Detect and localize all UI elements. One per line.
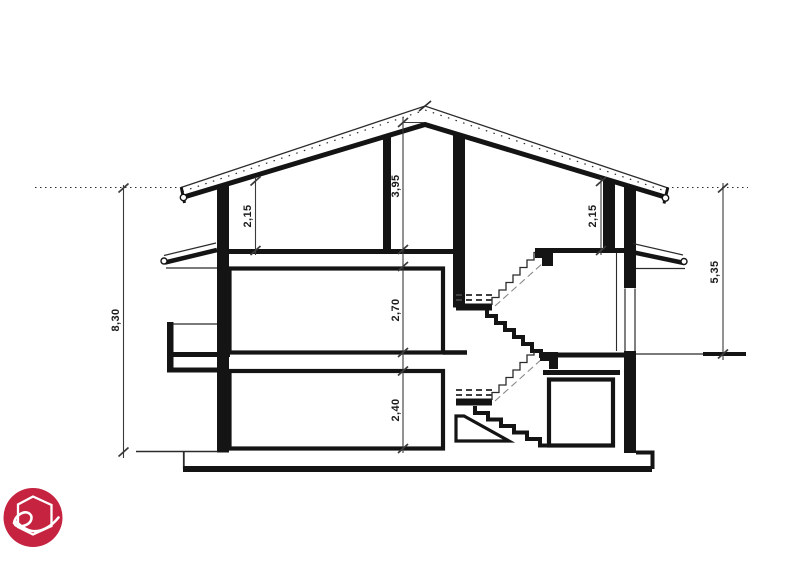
company-logo	[4, 488, 63, 547]
gable-roof	[180, 101, 668, 204]
drawing-canvas: 8,30 5,35 3,95 2,70 2,40 2,15 2,15	[0, 0, 800, 565]
dimension-attic-left-height: 2,15	[242, 204, 254, 227]
exterior-wall-left	[217, 183, 229, 453]
gutter-right	[662, 195, 668, 201]
first-floor-room	[230, 269, 444, 353]
canopy-left-gutter	[161, 258, 167, 264]
canopy-left-slab	[165, 250, 217, 263]
background-flight-lower	[492, 352, 534, 400]
stairwell-wall	[453, 135, 465, 308]
dimension-first-floor-height: 2,70	[390, 298, 402, 321]
cut-flight-upper	[487, 309, 554, 356]
stair-stringer-hidden	[495, 263, 543, 306]
background-flight-upper	[492, 253, 541, 306]
balcony-parapet	[167, 322, 174, 372]
exterior-wall-right-upper	[624, 187, 636, 288]
dimension-ridge-height: 3,95	[390, 174, 402, 197]
attic-wall-right	[603, 181, 615, 251]
ground-floor-room	[230, 371, 444, 449]
canopy-right-gutter	[681, 259, 687, 265]
building-section-drawing: 8,30 5,35 3,95 2,70 2,40 2,15 2,15	[0, 0, 800, 565]
stairs-lower	[456, 352, 558, 446]
dimension-total-height-left: 8,30	[110, 308, 122, 331]
roof-structure-line	[184, 125, 665, 198]
entry-slab-edge-steps	[540, 352, 558, 369]
gutter-left	[180, 194, 186, 200]
stairs-upper	[456, 248, 554, 356]
ridge-datum-tick	[419, 101, 431, 111]
walls	[217, 135, 636, 454]
dimension-ground-floor-height: 2,40	[390, 398, 402, 421]
dimension-attic-right-height: 2,15	[587, 204, 599, 227]
dimension-height-right: 5,35	[709, 260, 721, 283]
exterior-wall-right-lower	[624, 351, 636, 453]
stair-stringer-hidden	[495, 358, 543, 401]
attic-slab-edge-steps	[535, 248, 553, 266]
lower-right-room	[549, 380, 613, 446]
half-landing-slab-lower	[456, 399, 492, 406]
